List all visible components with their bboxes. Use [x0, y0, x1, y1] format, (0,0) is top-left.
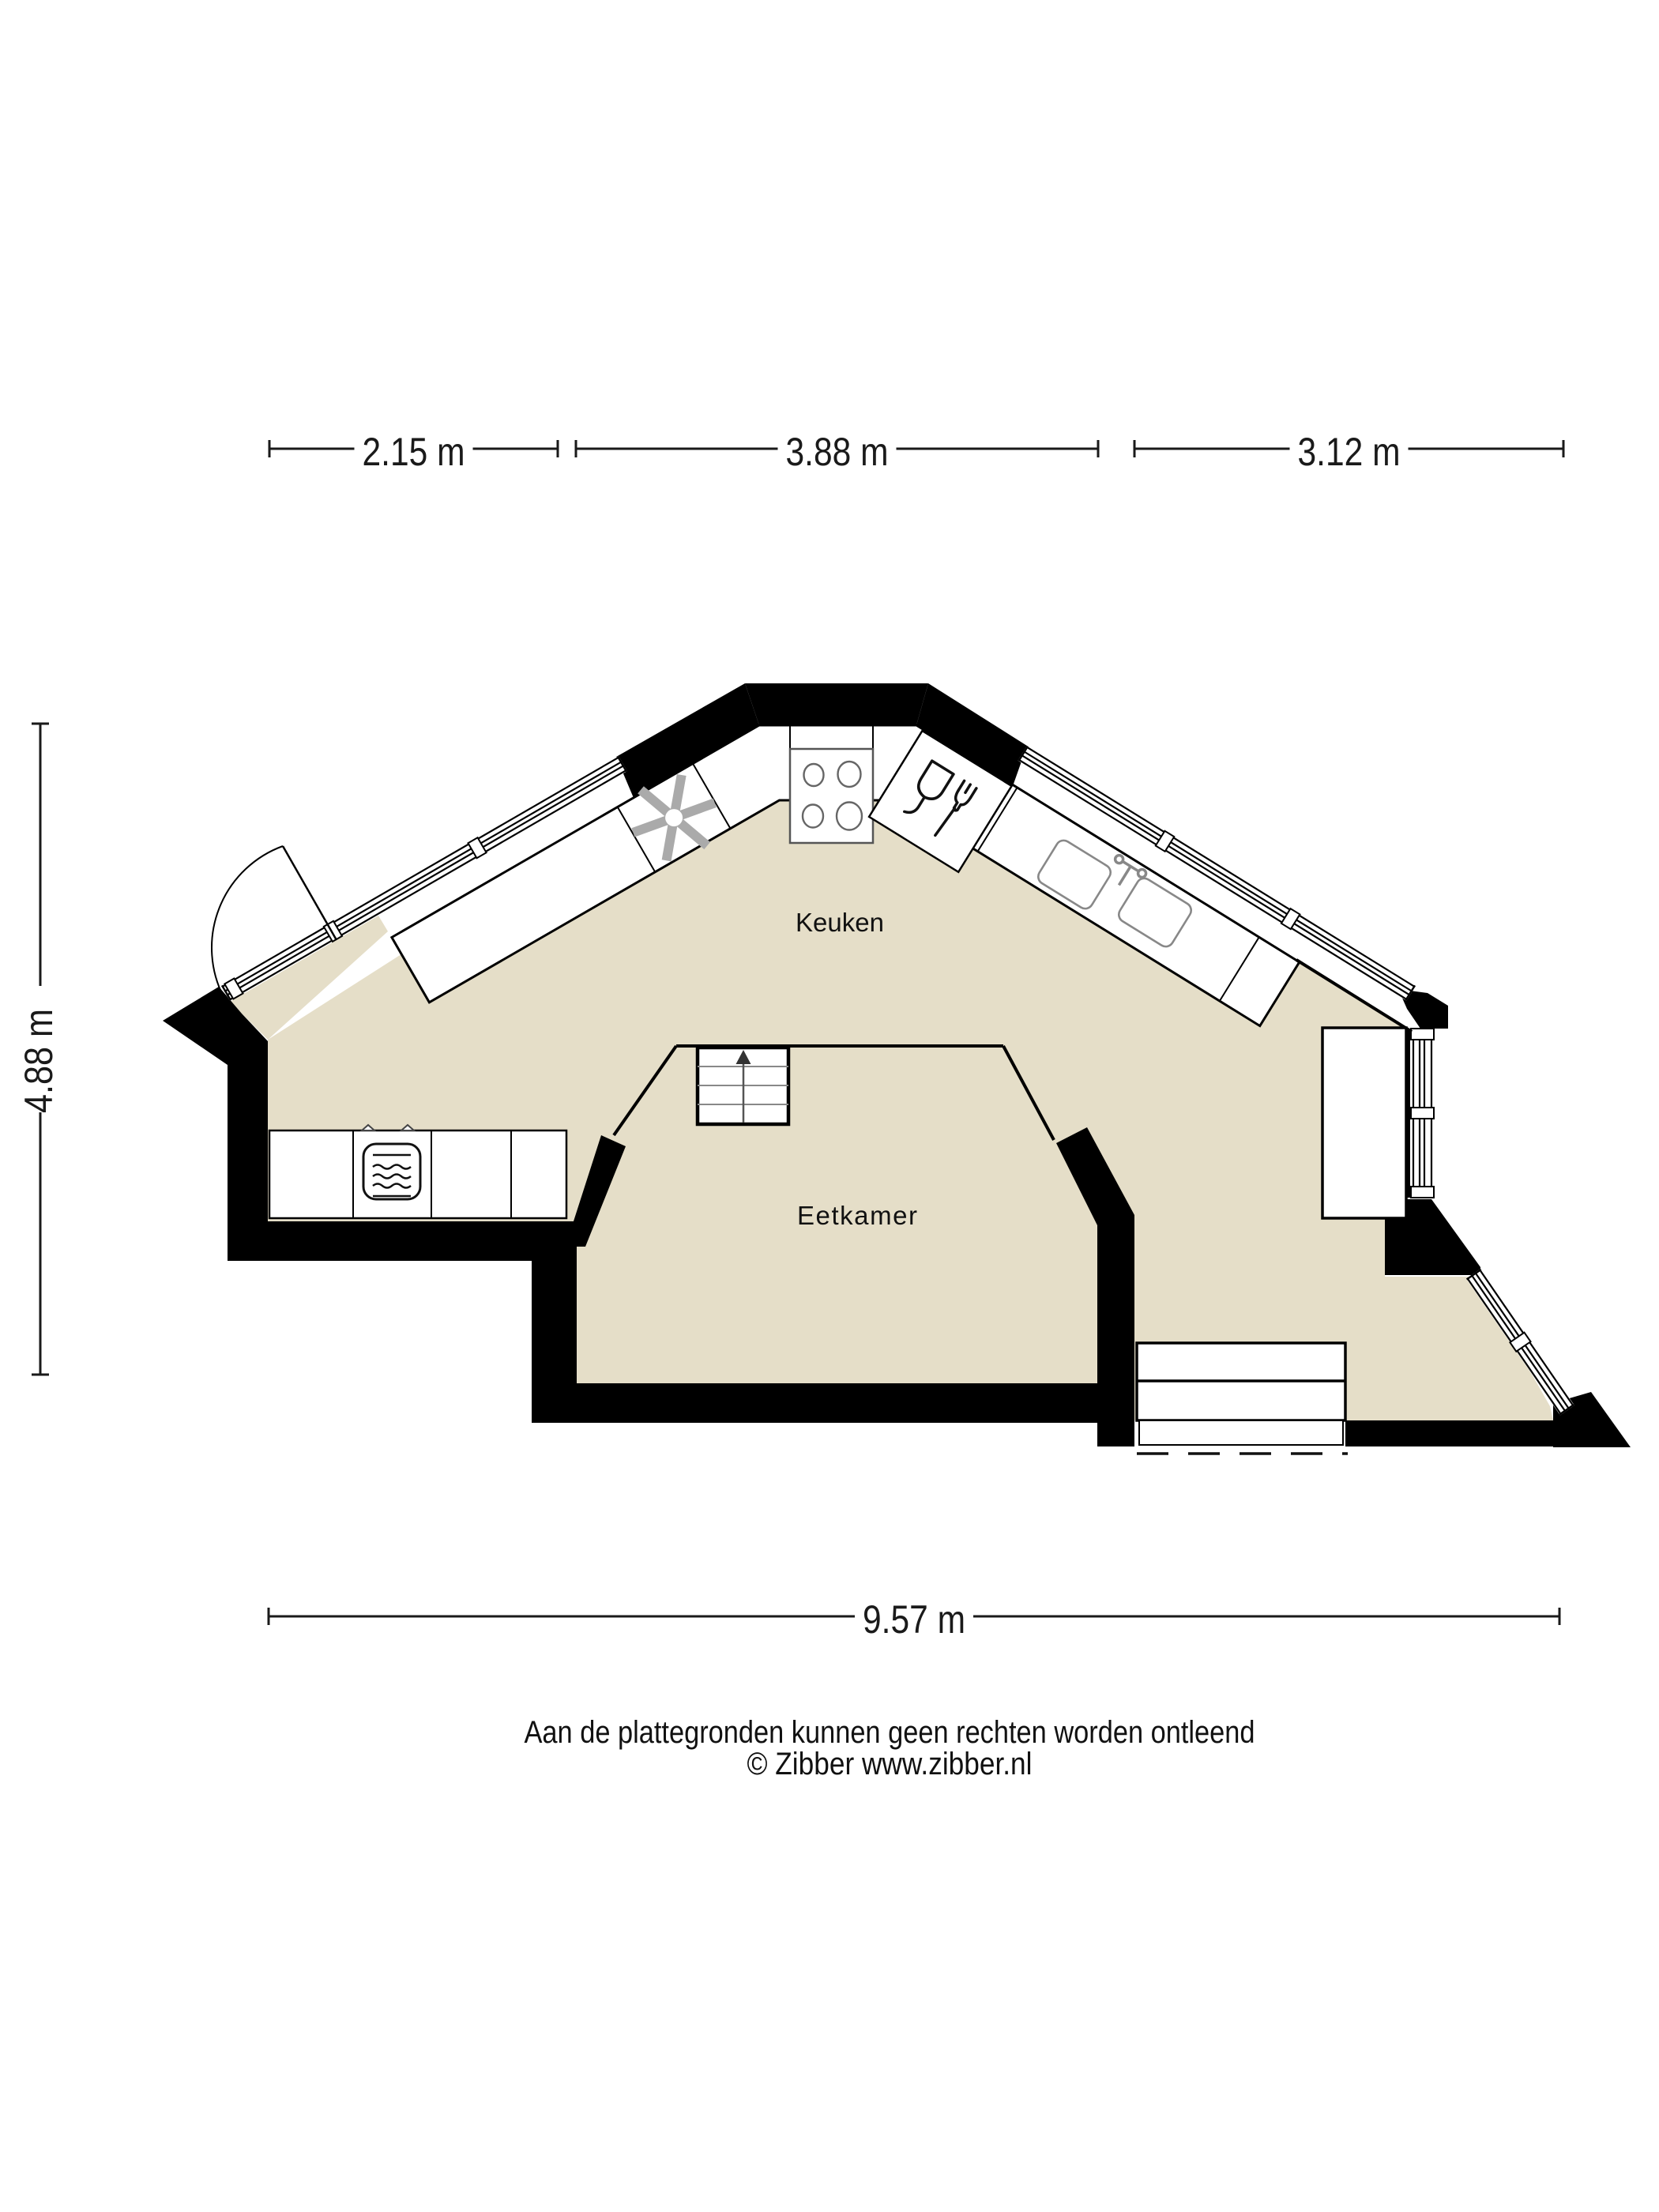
- svg-text:© Zibber www.zibber.nl: © Zibber www.zibber.nl: [747, 1747, 1033, 1781]
- svg-text:3.12 m: 3.12 m: [1298, 430, 1401, 474]
- svg-text:9.57 m: 9.57 m: [863, 1597, 965, 1642]
- svg-text:Keuken: Keuken: [796, 908, 884, 937]
- svg-text:Eetkamer: Eetkamer: [797, 1201, 917, 1230]
- svg-text:3.88 m: 3.88 m: [786, 430, 889, 474]
- svg-text:4.88 m: 4.88 m: [17, 1009, 61, 1113]
- svg-text:2.15 m: 2.15 m: [363, 430, 465, 474]
- svg-text:Aan de plattegronden kunnen ge: Aan de plattegronden kunnen geen rechten…: [525, 1715, 1255, 1750]
